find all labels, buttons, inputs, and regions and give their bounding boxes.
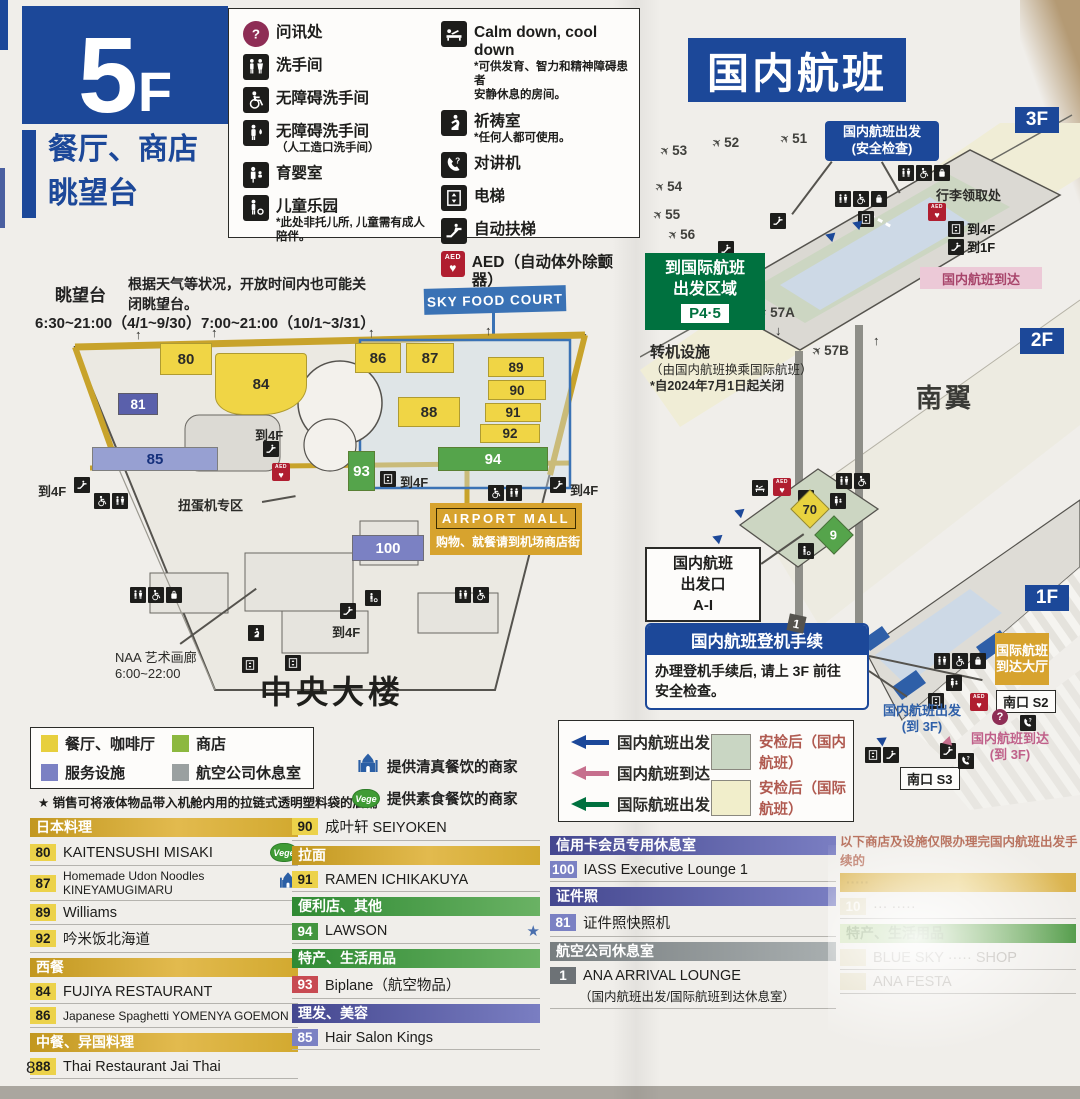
domestic-flights-title: 国内航班 [688,38,906,102]
escalator-icon [883,747,899,763]
facility-legend-col1: 问讯处洗手间无障碍洗手间无障碍洗手间（人工造口洗手间）育婴室儿童乐园*此处非托儿… [243,21,431,229]
domestic-dep-to-3f-label: 国内航班出发 (到 3F) [872,703,972,736]
domestic-checkin-box: 国内航班登机手续 办理登机手续后, 请上 3F 前往 安全检查。 [645,623,869,710]
directory-item: 80KAITENSUSHI MISAKIVege [30,840,298,866]
parking-p45-label: P4·5 [681,304,729,324]
map-unit-89: 89 [488,357,544,377]
shop-number-chip: 91 [292,871,318,888]
shop-number-chip: 89 [30,904,56,921]
direction-arrow-icon [571,797,609,811]
directory-item: BLUE SKY ····· SHOP [840,946,1076,970]
directory-column-2: 90成叶轩 SEIYOKEN拉面91RAMEN ICHIKAKUYA便利店、其他… [292,813,540,1050]
terminal-side-map: 3F 2F 1F 53 52 51 54 55 56 57A 57B ↓ ↑ 国… [640,95,1080,810]
map-unit-85: 85 [92,447,218,471]
floor-1f-chip: 1F [1025,585,1069,611]
shop-number-chip: 10 [840,898,866,915]
toilet-icon [835,191,851,207]
wheelchair-icon [853,191,869,207]
legend-label: 电梯 [474,185,505,206]
flow-legend-row: 国内航班出发 [571,731,710,753]
naa-gallery-label: NAA 艺术画廊 6:00~22:00 [115,647,197,681]
kids-icon [243,195,269,221]
category-legend-item: 商店 [172,733,303,754]
baggage-icon [871,191,887,207]
intl-departure-area-box: 到国际航班 出发区域 P4·5 [645,253,765,330]
toilet-icon [506,485,522,501]
category-legend: 餐厅、咖啡厅商店服务设施航空公司休息室 [30,727,314,789]
directory-section-header: 中餐、异国料理 [30,1033,298,1052]
floor-letter: F [138,63,172,122]
elevator-icon [242,657,258,673]
gate-56: 56 [668,227,695,242]
central-building-label: 中央大楼 [260,667,404,713]
legend-row: 自动扶梯 [441,218,629,244]
direction-arrow-icon [571,735,609,749]
legend-note: （人工造口洗手间） [276,141,380,155]
legend-row: 无障碍洗手间 [243,87,431,113]
shop-name: RAMEN ICHIKAKUYA [325,872,468,888]
directory-section-header: 特产、生活用品 [292,949,540,968]
shop-number-chip: 86 [30,1007,56,1024]
legend-label: 祈祷室 [474,110,570,131]
directory-section-header: 拉面 [292,846,540,865]
toilet-icon [112,493,128,509]
shop-name: IASS Executive Lounge 1 [584,862,748,878]
south-exit-s2-label: 南口 S2 [996,690,1056,713]
directory-item: ANA FESTA [840,970,1076,994]
page-edge-sliver [0,168,5,228]
legend-label: 问讯处 [276,21,323,42]
airport-mall-banner: AIRPORT MALL 购物、就餐请到机场商店街 [430,503,582,555]
south-wing-label: 南翼 [916,378,974,415]
down-arrow: ↓ [775,323,782,338]
gacha-area-label: 扭蛋机专区 [178,495,243,514]
map-unit-81: 81 [118,393,158,415]
directory-section-header: 信用卡会员专用休息室 [550,836,836,855]
directory-item: 94LAWSON★ [292,919,540,944]
map-unit-86: 86 [355,343,401,373]
category-swatch [41,735,58,752]
liquid-bag-star-icon: ★ [527,922,540,940]
legend-row: 问讯处 [243,21,431,47]
up-arrow: ↑ [873,333,880,348]
category-label: 航空公司休息室 [196,762,301,783]
intercom-icon [1020,715,1036,731]
floor-number: 5 [78,27,138,122]
plane-icon [653,207,663,222]
shop-name: FUJIYA RESTAURANT [63,984,212,1000]
directory-section-header: 便利店、其他 [292,897,540,916]
south-exit-s3-label: 南口 S3 [900,767,960,790]
map-unit-80: 80 [160,343,212,375]
legend-label: 儿童乐园 [276,195,431,216]
sky-food-court-banner: SKY FOOD COURT [424,285,567,315]
shop-name: Japanese Spaghetti YOMENYA GOEMON [63,1009,289,1023]
escalator-icon [550,477,566,493]
floor5-map: ↑ ↑ ↑ ↑ 80 84 86 87 89 90 91 92 88 81 85… [30,325,615,723]
shop-name: Homemade Udon Noodles KINEYAMUGIMARU [63,869,278,897]
map-unit-88: 88 [398,397,460,427]
legend-row: Calm down, cool down*可供发育、智力和精神障碍患者安静休息的… [441,21,629,103]
plane-icon [712,135,722,150]
directory-item: 91RAMEN ICHIKAKUYA [292,868,540,892]
page-number: 8 [26,1058,35,1078]
floor-2f-chip: 2F [1020,328,1064,354]
directory-item: 81证件照快照机 [550,909,836,937]
category-legend-item: 航空公司休息室 [172,762,303,783]
domestic-arr-to-3f-label: 国内航班到达 (到 3F) [958,731,1062,764]
directory-section-header: 西餐 [30,958,298,977]
toilet-icon [934,653,950,669]
aed-icon: AED♥ [970,693,988,711]
flow-legend: 国内航班出发国内航班到达国际航班出发安检后（国内航班）安检后（国际航班） [558,720,854,822]
directory-item: 84FUJIYA RESTAURANT [30,980,298,1004]
deck-entrance-arrow: ↑ [135,327,142,342]
vege-note: Vege 提供素食餐饮的商家 [352,788,518,809]
floor-subtitle-line1: 餐厅、商店 [48,128,198,172]
shop-number-chip: 85 [292,1029,318,1046]
legend-row: 无障碍洗手间（人工造口洗手间） [243,120,431,155]
aed-icon: AED♥ [441,251,465,277]
directory-column-3: 信用卡会员专用休息室100IASS Executive Lounge 1证件照8… [550,831,836,1009]
intl-arrival-hall-box: 国际航班 到达大厅 [995,633,1049,685]
plane-icon [812,343,822,358]
shop-name: LAWSON [325,923,387,939]
to-4f-elevator: 到4F [948,219,995,238]
map-unit-1: 1 [786,613,806,633]
vege-icon: Vege [352,789,380,808]
legend-row: AED♥AED（自动体外除颤器） [441,251,629,290]
checkin-body: 办理登机手续后, 请上 3F 前往 安全检查。 [647,655,867,708]
directory-item: 10··· ····· [840,895,1076,919]
gate-54: 54 [655,179,682,194]
to-4f-label: 到4F [332,622,360,641]
category-swatch [41,764,58,781]
directory-item: 85Hair Salon Kings [292,1026,540,1050]
legend-row: 电梯 [441,185,629,211]
transfer-closed-note: *自2024年7月1日起关闭 [650,375,784,394]
prayer-icon [441,110,467,136]
directory-item: 93Biplane（航空物品） [292,971,540,999]
to-4f-label: 到4F [38,481,66,500]
deck-title: 眺望台 [55,281,106,306]
legend-note: *任何人都可使用。 [474,131,570,145]
zone-label: 安检后（国内航班） [759,731,853,773]
shop-number-chip: 90 [292,818,318,835]
flow-legend-row: 国际航班出发 [571,793,710,815]
intercom-icon [441,152,467,178]
flow-label: 国内航班到达 [617,762,710,784]
calm-room-icon [752,480,768,496]
legend-label: Calm down, cool down [474,21,629,60]
wheelchair-icon [952,653,968,669]
shop-name: BLUE SKY ····· SHOP [873,950,1017,966]
facility-legend-col2: Calm down, cool down*可供发育、智力和精神障碍患者安静休息的… [441,21,629,229]
legend-label: 洗手间 [276,54,323,75]
liquid-bag-note: ★ 销售可将液体物品带入机舱内用的拉链式透明塑料袋的店铺 [38,792,378,811]
directory-item: 89Williams [30,901,298,925]
halal-icon [356,752,380,781]
floor-subtitle-line2: 眺望台 [48,172,198,216]
nursery-icon [946,675,962,691]
information-icon: ? [992,709,1008,725]
directory-section-header: 航空公司休息室 [550,942,836,961]
toilet-icon [455,587,471,603]
shop-number-chip: 81 [550,914,576,931]
calm-icon [441,21,467,47]
aed-icon: AED♥ [272,463,290,481]
shop-number-chip: 100 [550,861,577,878]
directory-item: 1ANA ARRIVAL LOUNGE（国内航班出发/国际航班到达休息室） [550,964,836,1009]
flow-legend-row: 国内航班到达 [571,762,710,784]
map-unit-84: 84 [215,353,307,415]
wheelchair-icon [473,587,489,603]
elevator-icon [865,747,881,763]
aed-icon: AED♥ [928,203,946,221]
direction-arrow-icon [571,766,609,780]
to-1f-escalator: 到1F [948,237,995,256]
shop-note: （国内航班出发/国际航班到达休息室） [579,986,836,1005]
floor-badge: 5 F [22,6,228,124]
directory-section-header: 日本料理 [30,818,298,837]
zone-swatch [711,780,751,816]
shop-name: Williams [63,905,117,921]
security-zone-row: 安检后（国际航班） [711,777,853,819]
airport-mall-subtitle: 购物、就餐请到机场商店街 [436,533,576,550]
gate-52: 52 [712,135,739,150]
wheelchair-icon [94,493,110,509]
toilet-icon [130,587,146,603]
shop-name: ANA ARRIVAL LOUNGE [583,968,741,984]
toilet-icon [836,473,852,489]
shop-number-chip [840,949,866,966]
shop-name: Thai Restaurant Jai Thai [63,1059,221,1075]
category-label: 服务设施 [65,762,125,783]
nursery-icon [243,162,269,188]
legend-label: 无障碍洗手间 [276,120,380,141]
shop-number-chip: 1 [550,967,576,984]
directory-column-1: 日本料理80KAITENSUSHI MISAKIVege87Homemade U… [30,813,298,1079]
flow-label: 国内航班出发 [617,731,710,753]
map-unit-87: 87 [406,343,454,373]
directory-section-header: 证件照 [550,887,836,906]
category-label: 餐厅、咖啡厅 [65,733,155,754]
zone-swatch [711,734,751,770]
legend-row: 育婴室 [243,162,431,188]
photo-background-bottom [0,1086,1080,1099]
directory-column-4-washed: ·····10··· ·····特产、生活用品BLUE SKY ····· SH… [840,868,1076,994]
escalator-icon [74,477,90,493]
escalator-icon [441,218,467,244]
floor-subtitle: 餐厅、商店 眺望台 [48,128,198,215]
kids-area-icon [365,590,381,606]
gate-55: 55 [653,207,680,222]
gate-53: 53 [660,143,687,158]
deck-note: 根据天气等状况，开放时间内也可能关 闭眺望台。 [128,275,366,314]
deck-entrance-arrow: ↑ [485,323,492,338]
directory-section-header: 特产、生活用品 [840,924,1076,943]
shop-number-chip: 80 [30,844,56,861]
shop-name: 成叶轩 SEIYOKEN [325,816,447,837]
elevator-icon [441,185,467,211]
shop-name: 证件照快照机 [583,912,670,933]
shop-name: ··· ····· [873,899,916,915]
nursery-icon [830,493,846,509]
brochure-page: 5 F 餐厅、商店 眺望台 问讯处洗手间无障碍洗手间无障碍洗手间（人工造口洗手间… [0,0,1080,1099]
elevator-icon [948,221,964,237]
aed-icon: AED♥ [773,478,791,496]
directory-section-header: 理发、美容 [292,1004,540,1023]
shop-number-chip: 94 [292,923,318,940]
shop-name: ANA FESTA [873,974,952,990]
shop-number-chip: 87 [30,875,56,892]
legend-row: 儿童乐园*此处非托儿所, 儿童需有成人陪伴。 [243,195,431,245]
escalator-icon [948,239,964,255]
escalator-icon [263,441,279,457]
shop-name: KAITENSUSHI MISAKI [63,845,213,861]
plane-icon [655,179,665,194]
shop-number-chip: 84 [30,983,56,1000]
page-edge-sliver [0,0,8,50]
baggage-icon [970,653,986,669]
shop-name: Biplane（航空物品） [325,974,460,995]
plane-icon [780,131,790,146]
plane-icon [668,227,678,242]
legend-row: 洗手间 [243,54,431,80]
shop-number-chip [840,973,866,990]
baggage-claim-label: 行李领取处 [936,185,1001,204]
wheelchair-icon [148,587,164,603]
to-4f-label: 到4F [400,472,428,491]
escalator-icon [340,603,356,619]
prayer-room-icon [248,625,264,641]
legend-label: 自动扶梯 [474,218,536,239]
deck-entrance-arrow: ↑ [368,325,375,340]
wheelchair-icon [916,165,932,181]
security-zone-row: 安检后（国内航班） [711,731,853,773]
map-unit-94: 94 [438,447,548,471]
legend-row: 对讲机 [441,152,629,178]
checkin-title: 国内航班登机手续 [647,625,867,655]
directory-item: 92吟米饭北海道 [30,925,298,953]
domestic-departure-gate-box: 国内航班 出发口 A-I [645,547,761,622]
wheelchair-icon [854,473,870,489]
legend-label: 无障碍洗手间 [276,87,369,108]
directory-item: 86Japanese Spaghetti YOMENYA GOEMON [30,1004,298,1028]
escalator-icon [770,213,786,229]
floor-3f-chip: 3F [1015,107,1059,133]
flow-label: 国际航班出发 [617,793,710,815]
wheelchair-icon [243,87,269,113]
category-swatch [172,764,189,781]
map-unit-90: 90 [488,380,546,400]
legend-note: 安静休息的房间。 [474,88,629,102]
directory-item: 100IASS Executive Lounge 1 [550,858,836,882]
directory-item: 87Homemade Udon Noodles KINEYAMUGIMARU [30,866,298,901]
directory-item: 90成叶轩 SEIYOKEN [292,813,540,841]
wheelchair-icon [488,485,504,501]
legend-label: 对讲机 [474,152,521,173]
baggage-icon [934,165,950,181]
directory-item: 88Thai Restaurant Jai Thai [30,1055,298,1079]
plane-icon [660,143,670,158]
shop-name: 吟米饭北海道 [63,928,150,949]
info-icon [243,21,269,47]
legend-note: *此处非托儿所, 儿童需有成人陪伴。 [276,216,431,245]
airport-mall-title: AIRPORT MALL [436,508,576,529]
subtitle-bar [22,130,36,218]
zone-label: 安检后（国际航班） [759,777,853,819]
gate-51: 51 [780,131,807,146]
legend-row: 祈祷室*任何人都可使用。 [441,110,629,145]
map-unit-100: 100 [352,535,424,561]
domestic-arrival-label: 国内航班到达 [920,267,1042,289]
gate-57b: 57B [812,343,849,358]
category-legend-item: 餐厅、咖啡厅 [41,733,172,754]
legend-label: AED（自动体外除颤器） [472,251,629,290]
kids-area-icon [798,543,814,559]
map-unit-93: 93 [348,451,375,491]
toilet-icon [243,54,269,80]
deck-entrance-arrow: ↑ [211,325,218,340]
map-unit-92: 92 [480,424,540,443]
domestic-departure-security-box: 国内航班出发 (安全检查) [825,121,939,161]
to-4f-label: 到4F [570,480,598,499]
category-legend-item: 服务设施 [41,762,172,783]
ostomate-icon [243,120,269,146]
shop-name: Hair Salon Kings [325,1030,433,1046]
baggage-icon [166,587,182,603]
map-unit-91: 91 [485,403,541,422]
toilet-icon [898,165,914,181]
legend-note: *可供发育、智力和精神障碍患者 [474,60,629,89]
elevator-icon [380,471,396,487]
shop-number-chip: 92 [30,930,56,947]
legend-label: 育婴室 [276,162,323,183]
category-label: 商店 [196,733,226,754]
category-swatch [172,735,189,752]
facility-legend: 问讯处洗手间无障碍洗手间无障碍洗手间（人工造口洗手间）育婴室儿童乐园*此处非托儿… [228,8,640,238]
halal-note: 提供清真餐饮的商家 [356,752,518,781]
directory-section-header: ····· [840,873,1076,892]
shop-number-chip: 93 [292,976,318,993]
